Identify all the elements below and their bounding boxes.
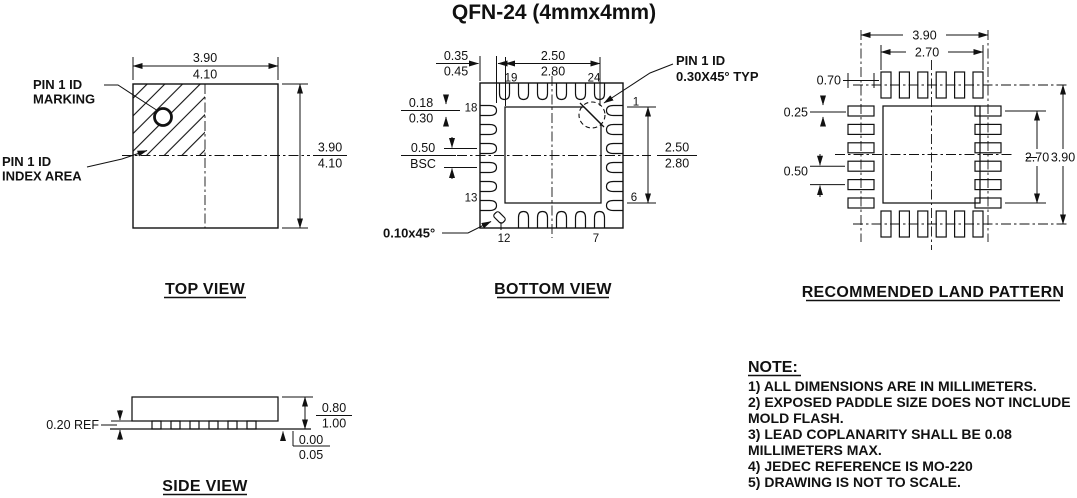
side-view-leads xyxy=(152,421,256,429)
dim-height-max: 4.10 xyxy=(318,157,342,171)
dim-lead-len-max: 0.45 xyxy=(444,65,468,79)
dim-height-nom: 0.80 xyxy=(322,401,346,415)
pin-number-1: 1 xyxy=(633,97,639,109)
note-line-2b: MOLD FLASH. xyxy=(748,410,844,426)
pin-number-24: 24 xyxy=(588,73,601,85)
dim-lead-w-nom: 0.18 xyxy=(409,96,433,110)
dim-land-outer-w: 3.90 xyxy=(912,29,936,43)
side-view-body xyxy=(132,397,278,421)
dim-package-height: 0.80 1.00 xyxy=(282,397,352,431)
dim-land-inner-w: 2.70 xyxy=(915,46,939,60)
pads-bottom-edge xyxy=(493,211,605,228)
note-line-3b: MILLIMETERS MAX. xyxy=(748,442,882,458)
land-dim-pitch: 0.50 xyxy=(784,154,845,197)
dim-pitch-ref: BSC xyxy=(410,157,436,171)
dim-standoff-value: 0.20 REF xyxy=(46,418,99,432)
land-dim-pad-length: 0.70 xyxy=(817,73,879,88)
pads-right-edge xyxy=(607,106,624,211)
chamfer-callout: 0.10x45° xyxy=(383,222,491,241)
pin-number-19: 19 xyxy=(505,73,518,85)
dim-seating: 0.00 0.05 xyxy=(283,431,330,462)
dim-height-max: 1.00 xyxy=(322,417,346,431)
pads-left-edge xyxy=(480,106,497,211)
land-pattern-caption: RECOMMENDED LAND PATTERN xyxy=(802,284,1065,301)
top-view-width-dimension: 3.90 4.10 xyxy=(133,51,278,82)
top-view-caption: TOP VIEW xyxy=(165,281,246,298)
note-line-5: 5) DRAWING IS NOT TO SCALE. xyxy=(748,474,961,490)
dim-pitch: 0.50 BSC xyxy=(401,137,477,179)
pin-number-12: 12 xyxy=(498,233,511,245)
bottom-view-centerlines xyxy=(457,76,651,238)
dim-land-pitch: 0.50 xyxy=(784,165,808,179)
side-view-caption: SIDE VIEW xyxy=(162,478,248,495)
dim-standoff: 0.20 REF xyxy=(46,410,133,440)
epad-corner-chamfer xyxy=(580,103,604,127)
dim-epad-w-nom: 2.50 xyxy=(541,49,565,63)
pin1-index-label-line2: INDEX AREA xyxy=(2,169,82,184)
pin1-callout-line2: 0.30X45° TYP xyxy=(676,69,759,84)
pin1-index-label-line1: PIN 1 ID xyxy=(2,154,51,169)
dim-epad-w-max: 2.80 xyxy=(541,65,565,79)
dim-land-pad-len: 0.70 xyxy=(817,74,841,88)
notes-heading: NOTE: xyxy=(748,359,798,376)
dim-land-inner-h: 2.70 xyxy=(1025,151,1049,165)
land-dim-outer-height: 3.90 xyxy=(1051,85,1075,224)
pin1-callout-line1: PIN 1 ID xyxy=(676,53,725,68)
land-dim-inner-width: 2.70 xyxy=(881,45,983,70)
page-title: QFN-24 (4mmx4mm) xyxy=(452,1,656,24)
land-dim-outer-width: 3.90 xyxy=(861,29,988,43)
dim-land-outer-h: 3.90 xyxy=(1051,151,1075,165)
land-dim-inner-height: 2.70 xyxy=(1005,111,1049,203)
dim-lead-width: 0.18 0.30 xyxy=(401,95,460,126)
package-drawing-page: QFN-24 (4mmx4mm) 3.90 4.10 3.90 4.10 PIN… xyxy=(0,0,1077,498)
dim-width-max: 4.10 xyxy=(193,68,217,82)
pin1-id-callout: PIN 1 ID 0.30X45° TYP xyxy=(604,53,759,103)
dim-width-nom: 3.90 xyxy=(193,51,217,65)
dim-epad-h-nom: 2.50 xyxy=(665,141,689,155)
notes-block: NOTE: 1) ALL DIMENSIONS ARE IN MILLIMETE… xyxy=(748,359,1071,490)
land-pattern: 3.90 2.70 0.70 0.25 0.50 xyxy=(784,29,1076,302)
dim-seat-max: 0.05 xyxy=(299,448,323,462)
pin1-marking-label-line1: PIN 1 ID xyxy=(33,77,82,92)
top-view-height-dimension: 3.90 4.10 xyxy=(282,84,347,228)
land-pattern-centerlines xyxy=(835,30,1068,250)
dim-height-nom: 3.90 xyxy=(318,141,342,155)
pin1-id-marking-circle xyxy=(155,109,172,126)
side-view: 0.20 REF 0.80 1.00 0.00 0.05 SIDE VIEW xyxy=(46,397,352,495)
pin-number-6: 6 xyxy=(631,192,637,204)
dim-seat-min: 0.00 xyxy=(299,433,323,447)
dim-lead-len-nom: 0.35 xyxy=(444,49,468,63)
pin1-marking-label-line2: MARKING xyxy=(33,92,95,107)
note-line-2: 2) EXPOSED PADDLE SIZE DOES NOT INCLUDE xyxy=(748,394,1071,410)
dim-epad-h-max: 2.80 xyxy=(665,157,689,171)
pin12-chamfer-pad xyxy=(493,211,506,224)
note-line-3: 3) LEAD COPLANARITY SHALL BE 0.08 xyxy=(748,426,1012,442)
note-line-1: 1) ALL DIMENSIONS ARE IN MILLIMETERS. xyxy=(748,378,1037,394)
dim-land-pad-w: 0.25 xyxy=(784,106,808,120)
land-dim-pad-width: 0.25 xyxy=(784,98,846,124)
pin-number-13: 13 xyxy=(465,193,478,205)
dim-lead-w-max: 0.30 xyxy=(409,112,433,126)
bottom-view: 0.35 0.45 2.50 2.80 0.18 0.30 0.50 BSC xyxy=(383,49,759,298)
exposed-pad-outline xyxy=(505,107,601,203)
dim-lead-length: 0.35 0.45 xyxy=(436,49,510,103)
dim-epad-height: 2.50 2.80 xyxy=(627,107,697,203)
chamfer-label: 0.10x45° xyxy=(383,226,435,241)
drawing-canvas: QFN-24 (4mmx4mm) 3.90 4.10 3.90 4.10 PIN… xyxy=(0,0,1077,498)
bottom-view-caption: BOTTOM VIEW xyxy=(494,281,612,298)
pin-number-7: 7 xyxy=(593,233,599,245)
top-view: 3.90 4.10 3.90 4.10 PIN 1 ID MARKING PIN… xyxy=(2,51,347,298)
pin-number-18: 18 xyxy=(465,103,478,115)
note-line-4: 4) JEDEC REFERENCE IS MO-220 xyxy=(748,458,973,474)
dim-pitch-value: 0.50 xyxy=(411,141,435,155)
